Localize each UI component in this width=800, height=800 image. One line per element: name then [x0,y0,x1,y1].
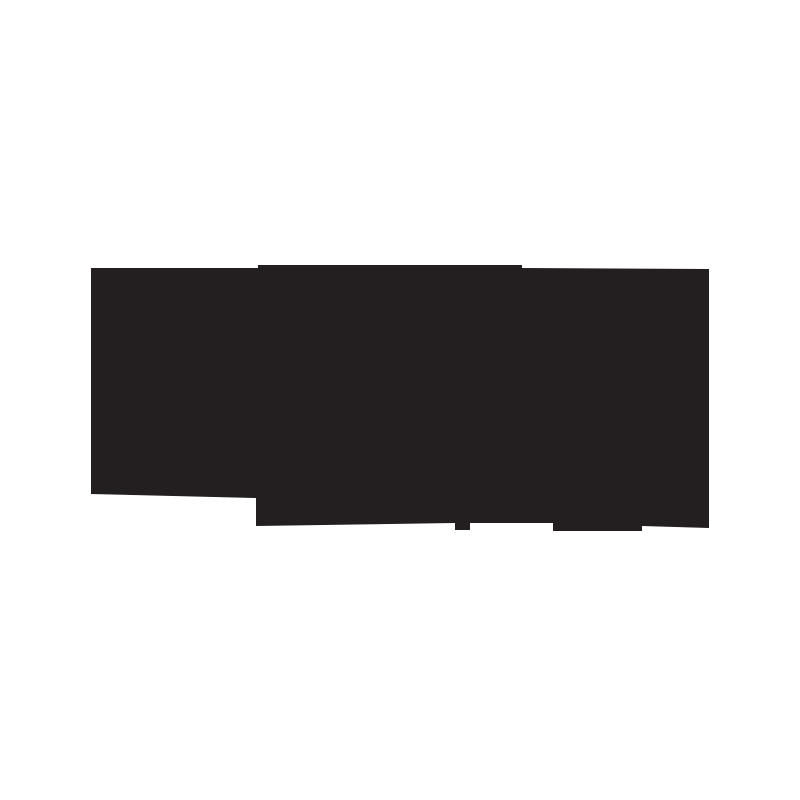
silhouette-shape [91,265,709,531]
silhouette-graphic [0,0,800,800]
canvas-background [0,0,800,800]
